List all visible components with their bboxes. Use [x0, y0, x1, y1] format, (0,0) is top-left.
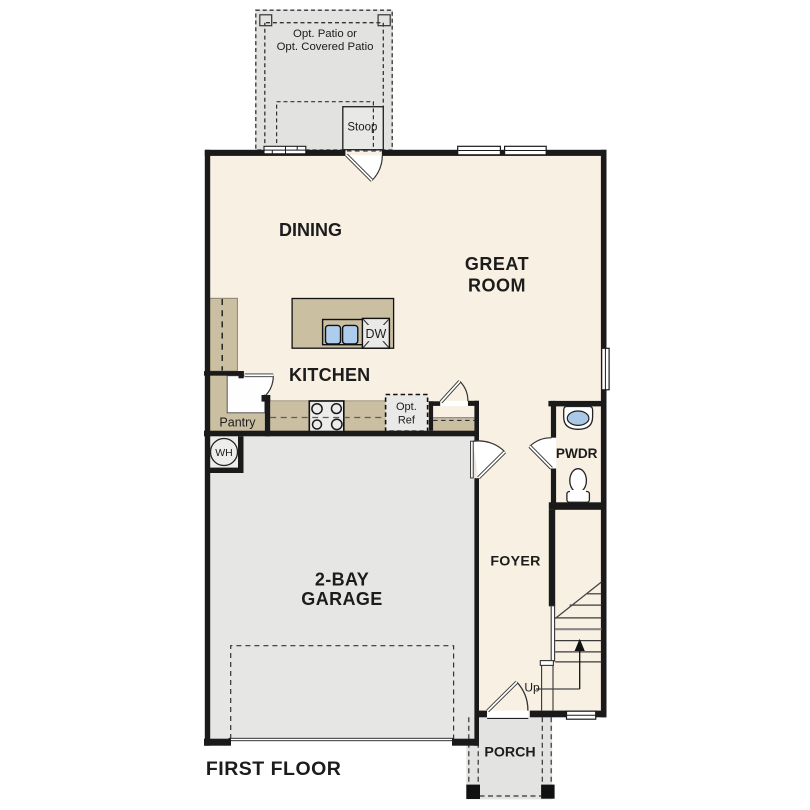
svg-text:Ref: Ref [398, 415, 416, 427]
svg-text:2-BAY: 2-BAY [315, 569, 369, 589]
svg-text:KITCHEN: KITCHEN [289, 365, 370, 385]
svg-text:FOYER: FOYER [490, 554, 540, 570]
svg-text:GREAT: GREAT [465, 254, 529, 274]
svg-text:Opt. Covered Patio: Opt. Covered Patio [277, 41, 374, 53]
svg-text:ROOM: ROOM [468, 276, 526, 296]
svg-text:DINING: DINING [279, 220, 342, 240]
svg-text:Opt. Patio or: Opt. Patio or [293, 28, 357, 40]
svg-text:PWDR: PWDR [556, 446, 598, 461]
svg-text:GARAGE: GARAGE [301, 589, 382, 609]
svg-text:WH: WH [215, 447, 233, 459]
svg-text:DW: DW [365, 327, 386, 341]
svg-text:Stoop: Stoop [347, 122, 377, 134]
svg-text:Pantry: Pantry [219, 416, 256, 430]
svg-text:PORCH: PORCH [484, 744, 535, 760]
svg-text:Up: Up [524, 681, 540, 695]
svg-text:Opt.: Opt. [396, 401, 417, 413]
svg-text:FIRST FLOOR: FIRST FLOOR [206, 758, 342, 780]
